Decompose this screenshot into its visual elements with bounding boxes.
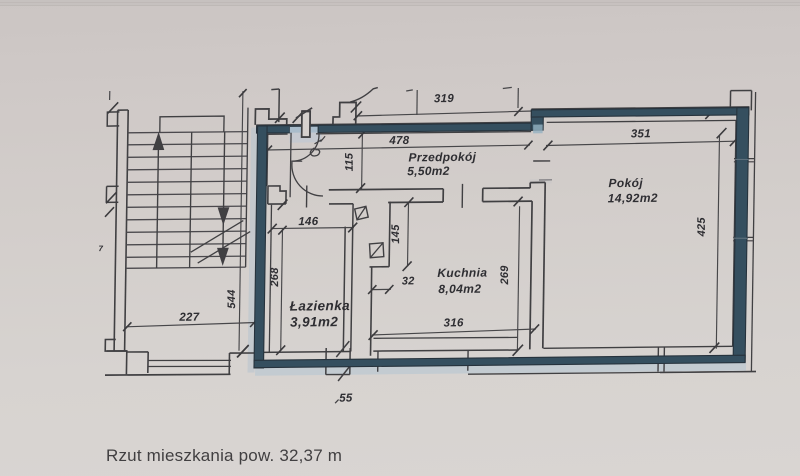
- svg-text:227: 227: [178, 312, 200, 324]
- svg-text:Pokój: Pokój: [608, 176, 643, 190]
- svg-text:115: 115: [344, 152, 356, 171]
- svg-text:544: 544: [226, 289, 238, 308]
- svg-text:32: 32: [402, 275, 415, 287]
- svg-text:Łazienka: Łazienka: [289, 298, 350, 314]
- svg-text:145: 145: [390, 224, 402, 244]
- svg-text:478: 478: [388, 135, 410, 147]
- svg-text:55: 55: [339, 392, 353, 404]
- svg-text:268: 268: [269, 267, 281, 288]
- svg-text:269: 269: [499, 265, 511, 286]
- svg-text:7: 7: [98, 244, 103, 253]
- svg-text:425: 425: [696, 217, 708, 238]
- svg-text:8,04m2: 8,04m2: [438, 282, 481, 296]
- svg-text:3,91m2: 3,91m2: [290, 314, 338, 330]
- svg-text:319: 319: [434, 93, 455, 105]
- svg-text:Kuchnia: Kuchnia: [437, 266, 487, 281]
- svg-text:5,50m2: 5,50m2: [407, 164, 450, 178]
- svg-text:316: 316: [444, 317, 465, 329]
- svg-text:146: 146: [298, 216, 319, 228]
- svg-text:14,92m2: 14,92m2: [608, 191, 658, 206]
- svg-text:Przedpokój: Przedpokój: [408, 150, 476, 165]
- svg-text:351: 351: [631, 128, 651, 140]
